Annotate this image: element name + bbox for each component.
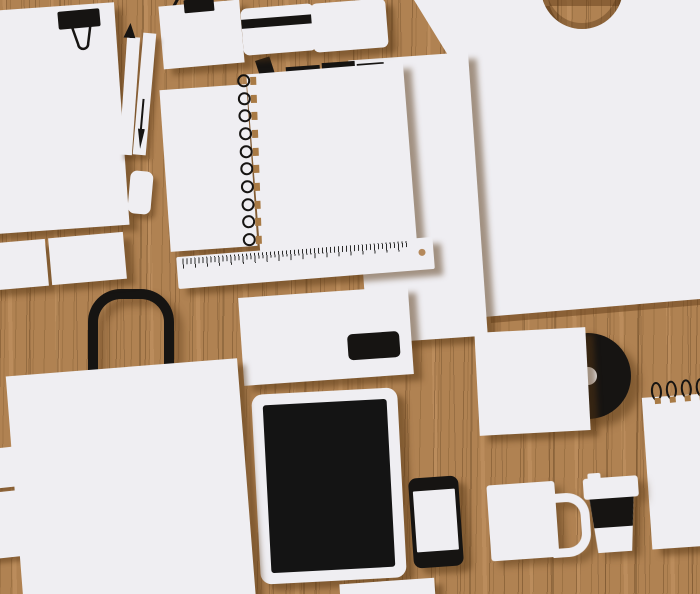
mug-body — [486, 481, 559, 562]
magnetic-stripe — [241, 14, 314, 29]
spiral-loop — [242, 215, 255, 229]
desk-flatlay-scene — [0, 0, 700, 594]
spiral-loop — [695, 378, 700, 398]
spiral-loop — [241, 180, 254, 194]
tablet-screen — [263, 399, 396, 573]
coffee-mug — [486, 479, 591, 566]
spiral-loop — [237, 74, 250, 88]
spiral-notepad — [642, 392, 700, 549]
envelope — [238, 286, 414, 386]
business-card-left-1 — [0, 239, 49, 292]
spiral-loop — [239, 127, 252, 141]
pen-ink-cartridge — [140, 99, 145, 131]
takeaway-coffee-cup — [581, 468, 645, 556]
shopping-bag — [6, 358, 257, 594]
spiral-loop — [240, 162, 253, 176]
smartphone — [408, 475, 464, 568]
spiral-loop — [243, 233, 256, 247]
cup-body — [585, 494, 642, 554]
eraser — [127, 170, 154, 215]
spiral-loop — [239, 145, 252, 159]
spiral-loop — [241, 198, 254, 212]
pen-nib — [136, 129, 145, 150]
ruler-hole — [418, 249, 426, 257]
phone-screen — [413, 489, 459, 553]
binder-clip-wire — [63, 23, 102, 60]
business-card-left-2 — [48, 232, 127, 285]
tablet-device — [251, 387, 407, 584]
spiral-loop — [650, 382, 663, 402]
spiral-loop — [665, 380, 678, 400]
credit-card — [240, 3, 316, 56]
business-card-top — [310, 0, 389, 53]
cup-sleeve-band — [585, 496, 640, 529]
notepad-spiral-binding — [650, 378, 700, 405]
spiral-loop — [238, 109, 251, 123]
spiral-loop — [238, 92, 251, 106]
envelope-address-window — [347, 331, 401, 361]
record-sleeve — [474, 327, 590, 436]
spiral-loop — [680, 379, 693, 399]
cup-lid — [583, 475, 639, 500]
notebook-page — [246, 62, 416, 252]
